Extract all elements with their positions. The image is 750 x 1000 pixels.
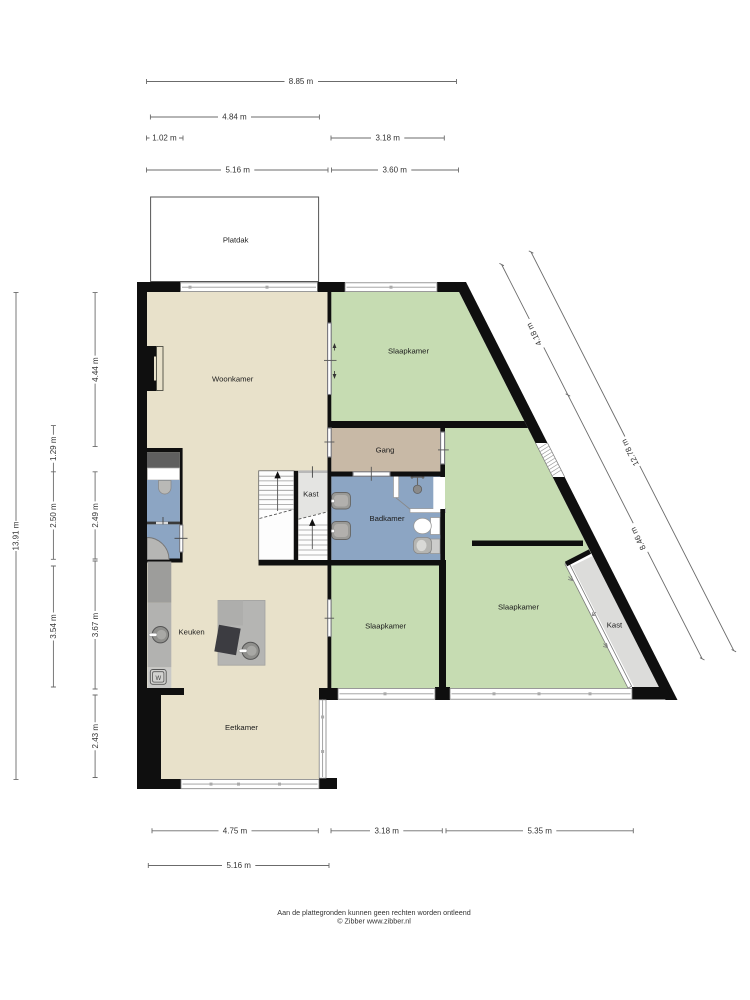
svg-text:Gang: Gang <box>376 445 395 454</box>
svg-text:2.50 m: 2.50 m <box>49 503 58 528</box>
svg-text:W: W <box>155 676 161 682</box>
svg-text:1.02 m: 1.02 m <box>152 134 177 143</box>
svg-text:Kast: Kast <box>607 620 623 629</box>
svg-text:8.85 m: 8.85 m <box>289 77 314 86</box>
svg-text:Eetkamer: Eetkamer <box>225 723 258 732</box>
svg-text:5.35 m: 5.35 m <box>527 827 552 836</box>
svg-text:3.60 m: 3.60 m <box>382 166 407 175</box>
svg-text:3.54 m: 3.54 m <box>49 614 58 639</box>
svg-text:Keuken: Keuken <box>179 627 205 636</box>
svg-text:Slaapkamer: Slaapkamer <box>365 621 406 630</box>
svg-text:Woonkamer: Woonkamer <box>212 375 254 384</box>
svg-text:4.84 m: 4.84 m <box>222 113 247 122</box>
svg-text:13.91 m: 13.91 m <box>12 521 21 550</box>
svg-text:3.18 m: 3.18 m <box>374 827 399 836</box>
svg-text:2.43 m: 2.43 m <box>91 724 100 749</box>
svg-text:5.16 m: 5.16 m <box>226 861 251 870</box>
svg-text:1.29 m: 1.29 m <box>49 436 58 461</box>
svg-text:Kast: Kast <box>303 490 319 499</box>
svg-text:4.75 m: 4.75 m <box>223 827 248 836</box>
svg-text:2.49 m: 2.49 m <box>91 503 100 528</box>
svg-text:5.16 m: 5.16 m <box>225 166 250 175</box>
svg-text:3.18 m: 3.18 m <box>375 134 400 143</box>
svg-text:Platdak: Platdak <box>223 236 249 245</box>
svg-text:© Zibber www.zibber.nl: © Zibber www.zibber.nl <box>337 917 411 926</box>
svg-text:Badkamer: Badkamer <box>369 514 404 523</box>
svg-text:Slaapkamer: Slaapkamer <box>498 602 539 611</box>
svg-text:3.67 m: 3.67 m <box>91 612 100 637</box>
svg-text:4.44 m: 4.44 m <box>91 357 100 382</box>
svg-text:Slaapkamer: Slaapkamer <box>388 347 429 356</box>
